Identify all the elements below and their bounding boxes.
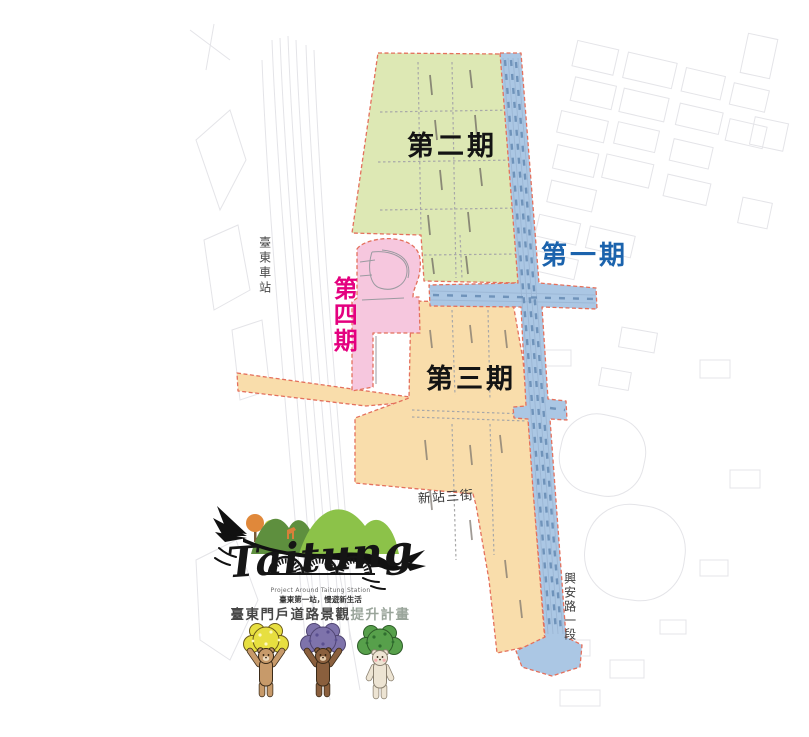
phase-4-label: 第四期	[330, 276, 355, 364]
bear-yellow-tree	[244, 624, 289, 695]
xingan-road-label: 興安路一段	[563, 572, 576, 644]
map-canvas: 第二期 第一期 第三期 第四期 臺東車站 新站三街 興安路一段	[0, 0, 809, 737]
zone-phase-3-strip	[237, 373, 410, 406]
mascot-bears	[235, 619, 407, 707]
bear-green-tree	[358, 626, 403, 697]
bear-purple-tree	[301, 624, 346, 695]
phase-1-label: 第一期	[541, 243, 628, 270]
phase-3-label: 第三期	[426, 366, 516, 394]
phase-2-label: 第二期	[407, 133, 497, 161]
taitung-logo: Taitung Project Around Taitung Station 臺…	[213, 492, 428, 710]
logo-tagline-en: Project Around Taitung Station	[213, 587, 428, 594]
taitung-station-label: 臺東車站	[258, 236, 271, 302]
